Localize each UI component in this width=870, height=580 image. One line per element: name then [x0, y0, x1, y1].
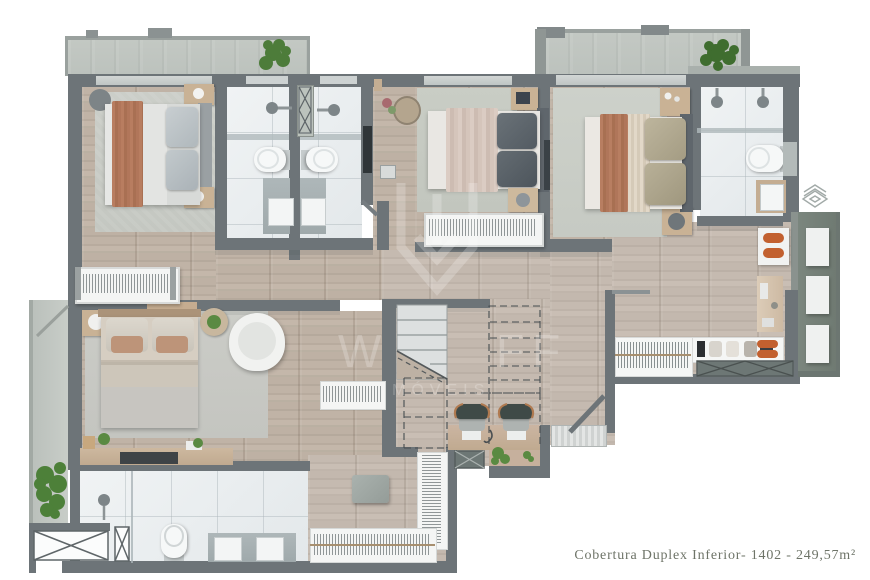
svg-text:MÓVEIS: MÓVEIS: [392, 380, 490, 399]
svg-text:W: W: [338, 325, 391, 377]
svg-text:FF: FF: [496, 325, 568, 377]
